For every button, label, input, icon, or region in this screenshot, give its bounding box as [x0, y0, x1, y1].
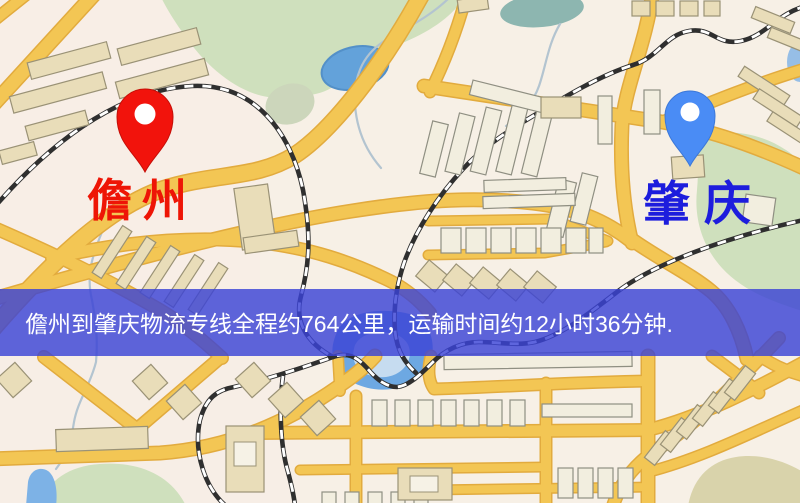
map-page: 儋州到肇庆物流专线全程约764公里，运输时间约12小时36分钟. 儋州 肇庆	[0, 0, 800, 503]
map-canvas[interactable]: 儋州到肇庆物流专线全程约764公里，运输时间约12小时36分钟. 儋州 肇庆	[0, 0, 800, 503]
route-banner-text: 儋州到肇庆物流专线全程约764公里，运输时间约12小时36分钟.	[25, 311, 673, 337]
pin-hole	[135, 104, 156, 125]
pin-hole	[681, 103, 700, 122]
origin-label: 儋州	[87, 175, 197, 226]
destination-label: 肇庆	[643, 177, 765, 230]
